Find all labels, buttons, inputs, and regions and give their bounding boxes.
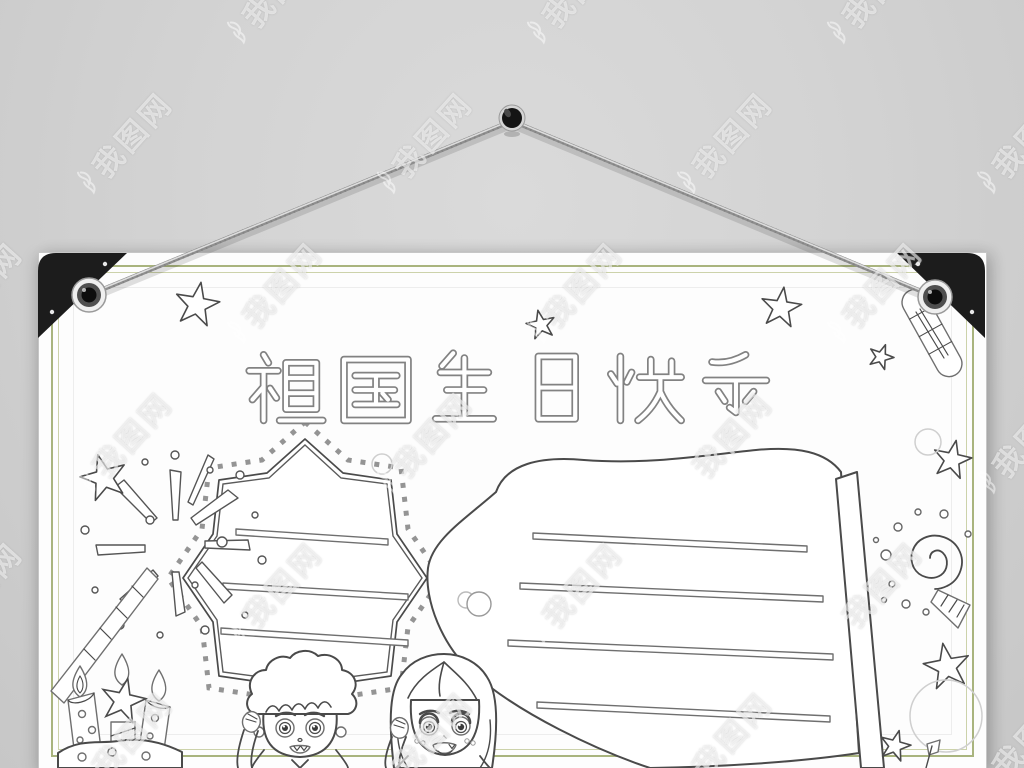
- title-art: [249, 353, 766, 420]
- star-icon: [866, 341, 897, 372]
- hanging-string-left: [89, 120, 515, 299]
- sparkler-icon: [51, 568, 158, 703]
- grommet-left: [72, 278, 106, 312]
- poster-line-art: [0, 0, 1024, 768]
- balloon-icon: [910, 680, 982, 752]
- star-icon: [172, 279, 222, 328]
- star-icon: [920, 639, 972, 690]
- faint-circle: [915, 429, 941, 455]
- wall-background: 祖国生日快乐: [0, 0, 1024, 768]
- hanging-string-right: [509, 120, 935, 301]
- party-horn-icon: [874, 509, 972, 628]
- birthday-cake-icon: [58, 654, 182, 768]
- star-icon: [759, 284, 804, 327]
- star-icon: [524, 307, 558, 339]
- grommet-right: [918, 280, 952, 314]
- mini-flag-icon: [926, 740, 940, 768]
- star-icon: [930, 436, 975, 479]
